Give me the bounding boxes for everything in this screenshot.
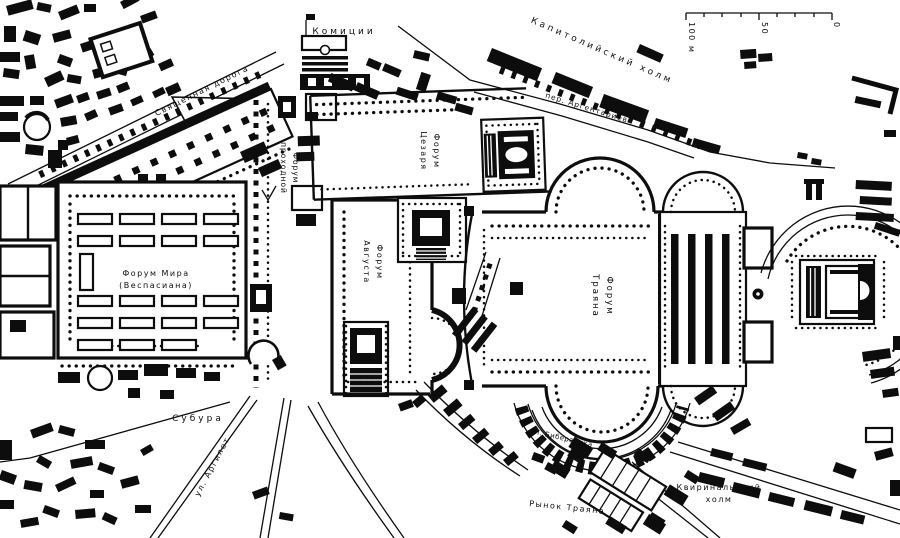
forum-trajan-court [452,158,663,442]
temple-of-venus-genetrix [481,118,545,192]
capitoline-blocks [487,44,896,166]
label-quirinal-hill-2: холм [706,495,733,504]
temple-of-trajan [792,256,884,328]
label-forum-pacis-2: (Веспасиана) [119,281,193,290]
label-forum-pacis-1: Форум Мира [122,269,189,278]
label-forum-trajan-2: Траяна [590,273,600,318]
label-comitium: Комиции [312,27,375,37]
label-forum-augustus-2: Августа [362,240,371,284]
scale-tick-100: 100 м [687,22,696,53]
library-north [744,228,772,268]
label-forum-transitorium-2: проходной [279,142,288,194]
north-apse [663,172,743,212]
temple-of-mars-ultor [398,198,466,262]
label-quirinal-hill-1: Квиринальский [677,483,762,492]
scale-bar: 100 м 50 0 [686,13,841,53]
scale-tick-0: 0 [832,22,841,29]
imperial-fora-plan: 100 м 50 0 [0,0,900,538]
label-forum-caesar-2: Цезаря [419,131,428,170]
basilica-ulpia [660,172,746,426]
label-forum-trajan-1: Форум [604,276,614,315]
v-mark [262,186,276,200]
label-argiletum-street: ул. Аргилет [193,435,232,498]
equestrian-statue-base [510,282,523,295]
scale-tick-50: 50 [760,22,769,35]
label-forum-caesar-1: Форум [432,133,441,168]
north-exedra [546,158,654,212]
library-south [744,322,772,362]
subura-blocks [0,422,294,527]
label-forum-transitorium-1: Форум [291,153,300,184]
temple-of-minerva [344,322,388,396]
label-forum-augustus-1: Форум [375,244,384,279]
column-of-trajan-group [744,228,772,362]
label-subura: Субура [172,414,224,424]
